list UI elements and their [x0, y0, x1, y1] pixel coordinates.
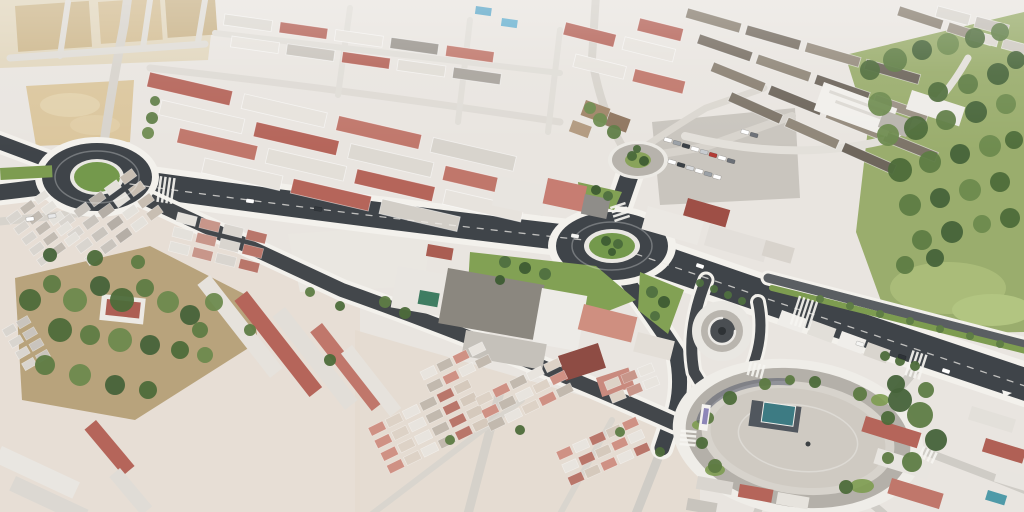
street-tree — [142, 127, 154, 139]
right-park-tree — [1005, 131, 1023, 149]
street-tree — [593, 113, 607, 127]
scattered-tree — [379, 296, 391, 308]
right-park-tree — [950, 144, 970, 164]
plaza-rim-tree — [853, 387, 867, 401]
right-park-tree — [965, 28, 985, 48]
plaza-pavilion — [761, 402, 795, 426]
sand-patch — [70, 115, 120, 135]
center-roundabout-tree — [613, 239, 623, 249]
scene-canvas — [0, 0, 1024, 512]
plaza-rim-tree — [696, 437, 708, 449]
right-park-tree — [941, 221, 963, 243]
right-park-tree — [958, 74, 978, 94]
median-tree — [846, 302, 854, 310]
right-park-tree — [926, 249, 944, 267]
right-park-tree — [979, 135, 1001, 157]
plaza-east-grove — [918, 382, 934, 398]
slope-tree — [519, 262, 531, 274]
right-park-tree — [868, 92, 892, 116]
left-park-tree — [105, 375, 125, 395]
slope-tree — [495, 275, 505, 285]
right-park-tree — [883, 48, 907, 72]
dirt-lot — [15, 1, 92, 52]
scattered-tree — [335, 301, 345, 311]
junction-median-tree — [724, 291, 732, 299]
slope-tree — [658, 296, 670, 308]
right-park-tree — [987, 63, 1009, 85]
scattered-tree — [615, 427, 625, 437]
plaza-east-grove — [887, 375, 905, 393]
right-park-tree — [899, 194, 921, 216]
street-tree — [146, 112, 158, 124]
scattered-tree — [244, 324, 256, 336]
median-tree — [816, 295, 824, 303]
scattered-tree — [445, 435, 455, 445]
plaza-shrub-bed — [850, 479, 874, 493]
left-park-tree — [19, 289, 41, 311]
right-park-tree — [937, 33, 959, 55]
right-park-tree — [860, 60, 880, 80]
right-park-tree — [996, 94, 1016, 114]
junction-median-tree — [710, 285, 718, 293]
left-park-tree — [136, 279, 154, 297]
scattered-tree — [324, 354, 336, 366]
left-park-tree — [43, 248, 57, 262]
center-roundabout-tree — [608, 248, 616, 256]
car — [48, 214, 56, 219]
street-tree — [607, 125, 621, 139]
right-park-tree — [912, 40, 932, 60]
right-park-tree — [991, 23, 1009, 41]
sidewalk-tree — [910, 361, 920, 371]
left-park-tree — [90, 276, 110, 296]
slope-tree — [499, 256, 511, 268]
car — [246, 199, 254, 204]
plaza-rim-tree — [882, 452, 894, 464]
left-park-tree — [43, 275, 61, 293]
plaza-east-grove — [907, 402, 933, 428]
junction-median-tree — [696, 279, 704, 287]
left-park-tree — [205, 293, 223, 311]
junction-median-tree — [738, 297, 746, 305]
plaza-rim-tree — [839, 480, 853, 494]
slope-tree — [539, 268, 551, 280]
median-tree — [966, 332, 974, 340]
left-park-tree — [110, 288, 134, 312]
car — [314, 207, 322, 212]
slope-tree — [646, 286, 658, 298]
plaza-rim-tree — [708, 459, 722, 473]
right-park-tree — [959, 179, 981, 201]
left-park-tree — [171, 341, 189, 359]
plaza-monument — [806, 442, 811, 447]
left-park-tree — [140, 335, 160, 355]
plaza-rim-tree — [723, 391, 737, 405]
left-park-tree — [131, 255, 145, 269]
right-park-tree — [904, 116, 928, 140]
right-park-tree — [919, 151, 941, 173]
left-park-tree — [69, 364, 91, 386]
right-park-tree — [990, 172, 1010, 192]
left-park-tree — [139, 381, 157, 399]
spiral-ramp-center — [718, 327, 726, 335]
left-park-tree — [108, 328, 132, 352]
sidewalk-tree — [880, 351, 890, 361]
slope-tree — [650, 311, 660, 321]
median-tree — [936, 325, 944, 333]
car — [26, 217, 34, 222]
left-park-tree — [80, 325, 100, 345]
left-park-tree — [63, 288, 87, 312]
plaza-east-grove — [925, 429, 947, 451]
plaza-shrub-bed — [871, 394, 889, 406]
slope-tree — [603, 191, 613, 201]
center-roundabout-tree — [601, 236, 611, 246]
plaza-rim-tree — [759, 378, 771, 390]
scattered-tree — [305, 287, 315, 297]
left-park-tree — [87, 250, 103, 266]
median-tree — [906, 317, 914, 325]
right-park-tree — [1000, 208, 1020, 228]
median-tree — [996, 340, 1004, 348]
scattered-tree — [655, 447, 665, 457]
left-park-tree — [192, 322, 208, 338]
scattered-tree — [399, 307, 411, 319]
plaza-rim-tree — [785, 375, 795, 385]
plaza-rim-tree — [881, 411, 895, 425]
left-park-tree — [48, 318, 72, 342]
street-tree — [584, 102, 596, 114]
right-park-tree — [973, 215, 991, 233]
small-roundabout-tree — [633, 145, 641, 153]
left-park-tree — [157, 291, 179, 313]
school-east-wing — [532, 288, 587, 351]
right-park-tree — [936, 110, 956, 130]
right-park-tree — [928, 82, 948, 102]
small-roundabout-tree — [639, 156, 649, 166]
street-tree — [150, 96, 160, 106]
sand-patch — [40, 93, 100, 117]
plaza-east-grove — [902, 452, 922, 472]
left-park-tree — [197, 347, 213, 363]
slope-tree — [591, 185, 601, 195]
right-park-tree — [930, 188, 950, 208]
dirt-lot — [165, 0, 218, 38]
left-park-tree — [180, 305, 200, 325]
aerial-city-render — [0, 0, 1024, 512]
scattered-tree — [515, 425, 525, 435]
right-park-tree — [912, 230, 932, 250]
plaza-rim-tree — [809, 376, 821, 388]
right-park-tree — [888, 158, 912, 182]
right-park-tree — [877, 124, 899, 146]
right-park-tree — [896, 256, 914, 274]
left-park-tree — [35, 355, 55, 375]
right-park-tree — [965, 101, 987, 123]
median-tree — [876, 310, 884, 318]
